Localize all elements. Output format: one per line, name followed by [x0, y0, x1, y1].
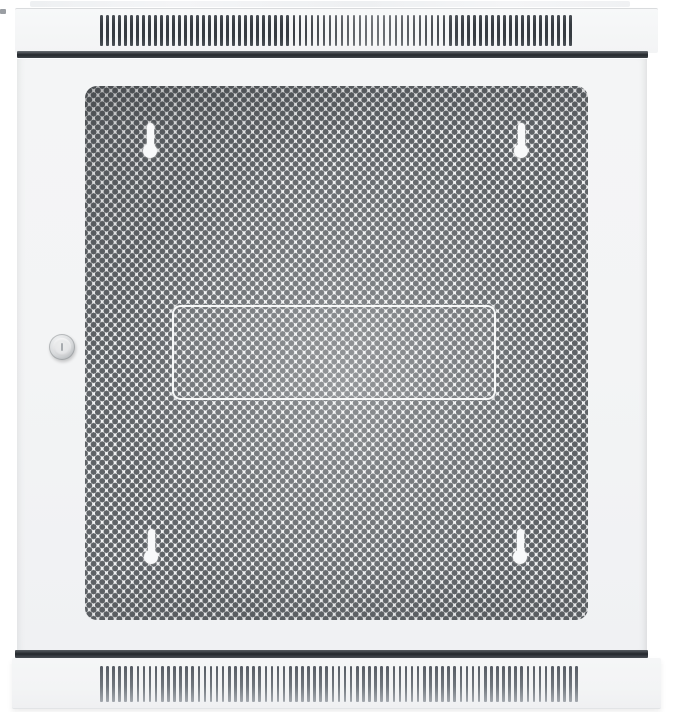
vent-slat — [502, 666, 505, 702]
top-gap-shadow — [17, 51, 648, 58]
vent-slat — [323, 15, 326, 46]
vent-slat — [274, 15, 277, 46]
vent-slat — [551, 15, 554, 46]
vent-slat — [289, 666, 292, 702]
keyhole-mount-top-left — [142, 123, 158, 159]
vent-slat — [545, 15, 548, 46]
vent-slat — [234, 666, 237, 702]
vent-slat — [479, 15, 482, 46]
vent-slat — [160, 15, 163, 46]
vent-slat — [222, 666, 225, 702]
keyhole-mount-top-right — [513, 123, 529, 159]
vent-slat — [155, 666, 158, 702]
vent-slat — [196, 15, 199, 46]
vent-slat — [386, 666, 389, 702]
vent-slat — [280, 15, 283, 46]
vent-slat — [262, 15, 265, 46]
vent-slat — [497, 15, 500, 46]
vent-slat — [533, 15, 536, 46]
vent-slat — [130, 15, 133, 46]
vent-slat — [485, 15, 488, 46]
vent-slat — [210, 666, 213, 702]
vent-slat — [539, 666, 542, 702]
vent-slat — [277, 666, 280, 702]
vent-slat — [252, 666, 255, 702]
vent-slat — [335, 15, 338, 46]
vent-slat — [503, 15, 506, 46]
vent-slat — [545, 666, 548, 702]
vent-slat — [256, 15, 259, 46]
vent-slat — [246, 666, 249, 702]
vent-slat — [301, 666, 304, 702]
vent-slat — [265, 666, 268, 702]
vent-slat — [380, 666, 383, 702]
center-panel-outline — [172, 305, 496, 400]
keyhole-mount-bottom-left — [143, 529, 159, 565]
vent-slat — [244, 15, 247, 46]
keyhole-circle — [144, 550, 158, 564]
vent-slat — [533, 666, 536, 702]
vent-slat — [307, 666, 310, 702]
bottom-panel — [12, 658, 661, 709]
top-vent-grille — [100, 15, 573, 46]
vent-slat — [226, 15, 229, 46]
vent-slat — [185, 666, 188, 702]
vent-slat — [305, 15, 308, 46]
top-panel — [15, 8, 658, 53]
vent-slat — [455, 15, 458, 46]
vent-slat — [374, 666, 377, 702]
vent-slat — [417, 666, 420, 702]
vent-slat — [208, 15, 211, 46]
keyhole-mount-bottom-right — [512, 529, 528, 565]
vent-slat — [191, 666, 194, 702]
vent-slat — [478, 666, 481, 702]
vent-slat — [130, 666, 133, 702]
vent-slat — [441, 666, 444, 702]
vent-slat — [124, 15, 127, 46]
vent-slat — [429, 666, 432, 702]
keyhole-circle — [514, 144, 528, 158]
vent-slat — [521, 15, 524, 46]
vent-slat — [520, 666, 523, 702]
vent-slat — [202, 15, 205, 46]
vent-slat — [461, 15, 464, 46]
vent-slat — [161, 666, 164, 702]
vent-slat — [295, 666, 298, 702]
bottom-gap-shadow — [15, 650, 648, 658]
vent-slat — [443, 15, 446, 46]
keyhole-circle — [513, 550, 527, 564]
vent-slat — [569, 666, 572, 702]
vent-slat — [347, 15, 350, 46]
vent-slat — [447, 666, 450, 702]
vent-slat — [338, 666, 341, 702]
vent-slat — [172, 15, 175, 46]
vent-slat — [124, 666, 127, 702]
vent-slat — [142, 15, 145, 46]
vent-slat — [557, 666, 560, 702]
vent-slat — [190, 15, 193, 46]
vent-slat — [563, 666, 566, 702]
vent-slat — [154, 15, 157, 46]
vent-slat — [137, 666, 140, 702]
vent-slat — [362, 666, 365, 702]
vent-slat — [118, 15, 121, 46]
vent-slat — [167, 666, 170, 702]
vent-slat — [283, 666, 286, 702]
vent-slat — [353, 15, 356, 46]
vent-slat — [435, 666, 438, 702]
vent-slat — [473, 15, 476, 46]
vent-slat — [514, 666, 517, 702]
vent-slat — [389, 15, 392, 46]
vent-slat — [299, 15, 302, 46]
vent-slat — [250, 15, 253, 46]
bottom-vent-grille — [100, 666, 578, 702]
vent-slat — [472, 666, 475, 702]
vent-slat — [365, 15, 368, 46]
vent-slat — [204, 666, 207, 702]
roof-edge-highlight — [30, 1, 630, 7]
vent-slat — [515, 15, 518, 46]
vent-slat — [539, 15, 542, 46]
vent-slat — [238, 15, 241, 46]
vent-slat — [551, 666, 554, 702]
vent-slat — [449, 15, 452, 46]
vent-slat — [527, 15, 530, 46]
vent-slat — [377, 15, 380, 46]
vent-slat — [332, 666, 335, 702]
vent-slat — [178, 15, 181, 46]
vent-slat — [350, 666, 353, 702]
vent-slat — [313, 666, 316, 702]
vent-slat — [258, 666, 261, 702]
vent-slat — [437, 15, 440, 46]
vent-slat — [232, 15, 235, 46]
vent-slat — [100, 15, 103, 46]
vent-slat — [293, 15, 296, 46]
vent-slat — [220, 15, 223, 46]
vent-slat — [527, 666, 530, 702]
vent-slat — [509, 15, 512, 46]
vent-slat — [228, 666, 231, 702]
door-lock — [49, 334, 75, 360]
vent-slat — [356, 666, 359, 702]
vent-slat — [413, 15, 416, 46]
vent-slat — [484, 666, 487, 702]
vent-slat — [118, 666, 121, 702]
vent-slat — [106, 666, 109, 702]
vent-slat — [179, 666, 182, 702]
vent-slat — [407, 15, 410, 46]
vent-slat — [341, 15, 344, 46]
vent-slat — [106, 15, 109, 46]
vent-slat — [166, 15, 169, 46]
vent-slat — [214, 15, 217, 46]
vent-slat — [419, 15, 422, 46]
vent-slat — [240, 666, 243, 702]
keyhole-icon — [61, 343, 63, 351]
product-photo — [0, 0, 673, 712]
vent-slat — [453, 666, 456, 702]
vent-slat — [286, 15, 289, 46]
vent-slat — [216, 666, 219, 702]
vent-slat — [371, 15, 374, 46]
vent-slat — [393, 666, 396, 702]
vent-slat — [325, 666, 328, 702]
vent-slat — [425, 15, 428, 46]
vent-slat — [368, 666, 371, 702]
vent-slat — [557, 15, 560, 46]
vent-slat — [184, 15, 187, 46]
vent-slat — [491, 15, 494, 46]
vent-slat — [411, 666, 414, 702]
vent-slat — [460, 666, 463, 702]
vent-slat — [268, 15, 271, 46]
vent-slat — [198, 666, 201, 702]
vent-slat — [401, 15, 404, 46]
vent-slat — [112, 666, 115, 702]
vent-slat — [344, 666, 347, 702]
vent-slat — [317, 15, 320, 46]
vent-slat — [271, 666, 274, 702]
lock-face — [53, 338, 71, 356]
vent-slat — [359, 15, 362, 46]
vent-slat — [496, 666, 499, 702]
vent-slat — [148, 15, 151, 46]
vent-slat — [490, 666, 493, 702]
vent-slat — [319, 666, 322, 702]
vent-slat — [329, 15, 332, 46]
vent-slat — [575, 666, 578, 702]
vent-slat — [569, 15, 572, 46]
vent-slat — [112, 15, 115, 46]
keyhole-circle — [143, 144, 157, 158]
vent-slat — [467, 15, 470, 46]
vent-slat — [563, 15, 566, 46]
vent-slat — [149, 666, 152, 702]
vent-slat — [395, 15, 398, 46]
vent-slat — [431, 15, 434, 46]
vent-slat — [311, 15, 314, 46]
vent-slat — [423, 666, 426, 702]
vent-slat — [466, 666, 469, 702]
vent-slat — [405, 666, 408, 702]
vent-slat — [143, 666, 146, 702]
vent-slat — [399, 666, 402, 702]
vent-slat — [100, 666, 103, 702]
vent-slat — [383, 15, 386, 46]
vent-slat — [508, 666, 511, 702]
vent-slat — [136, 15, 139, 46]
vent-slat — [173, 666, 176, 702]
hinge-edge-mark — [0, 9, 6, 14]
